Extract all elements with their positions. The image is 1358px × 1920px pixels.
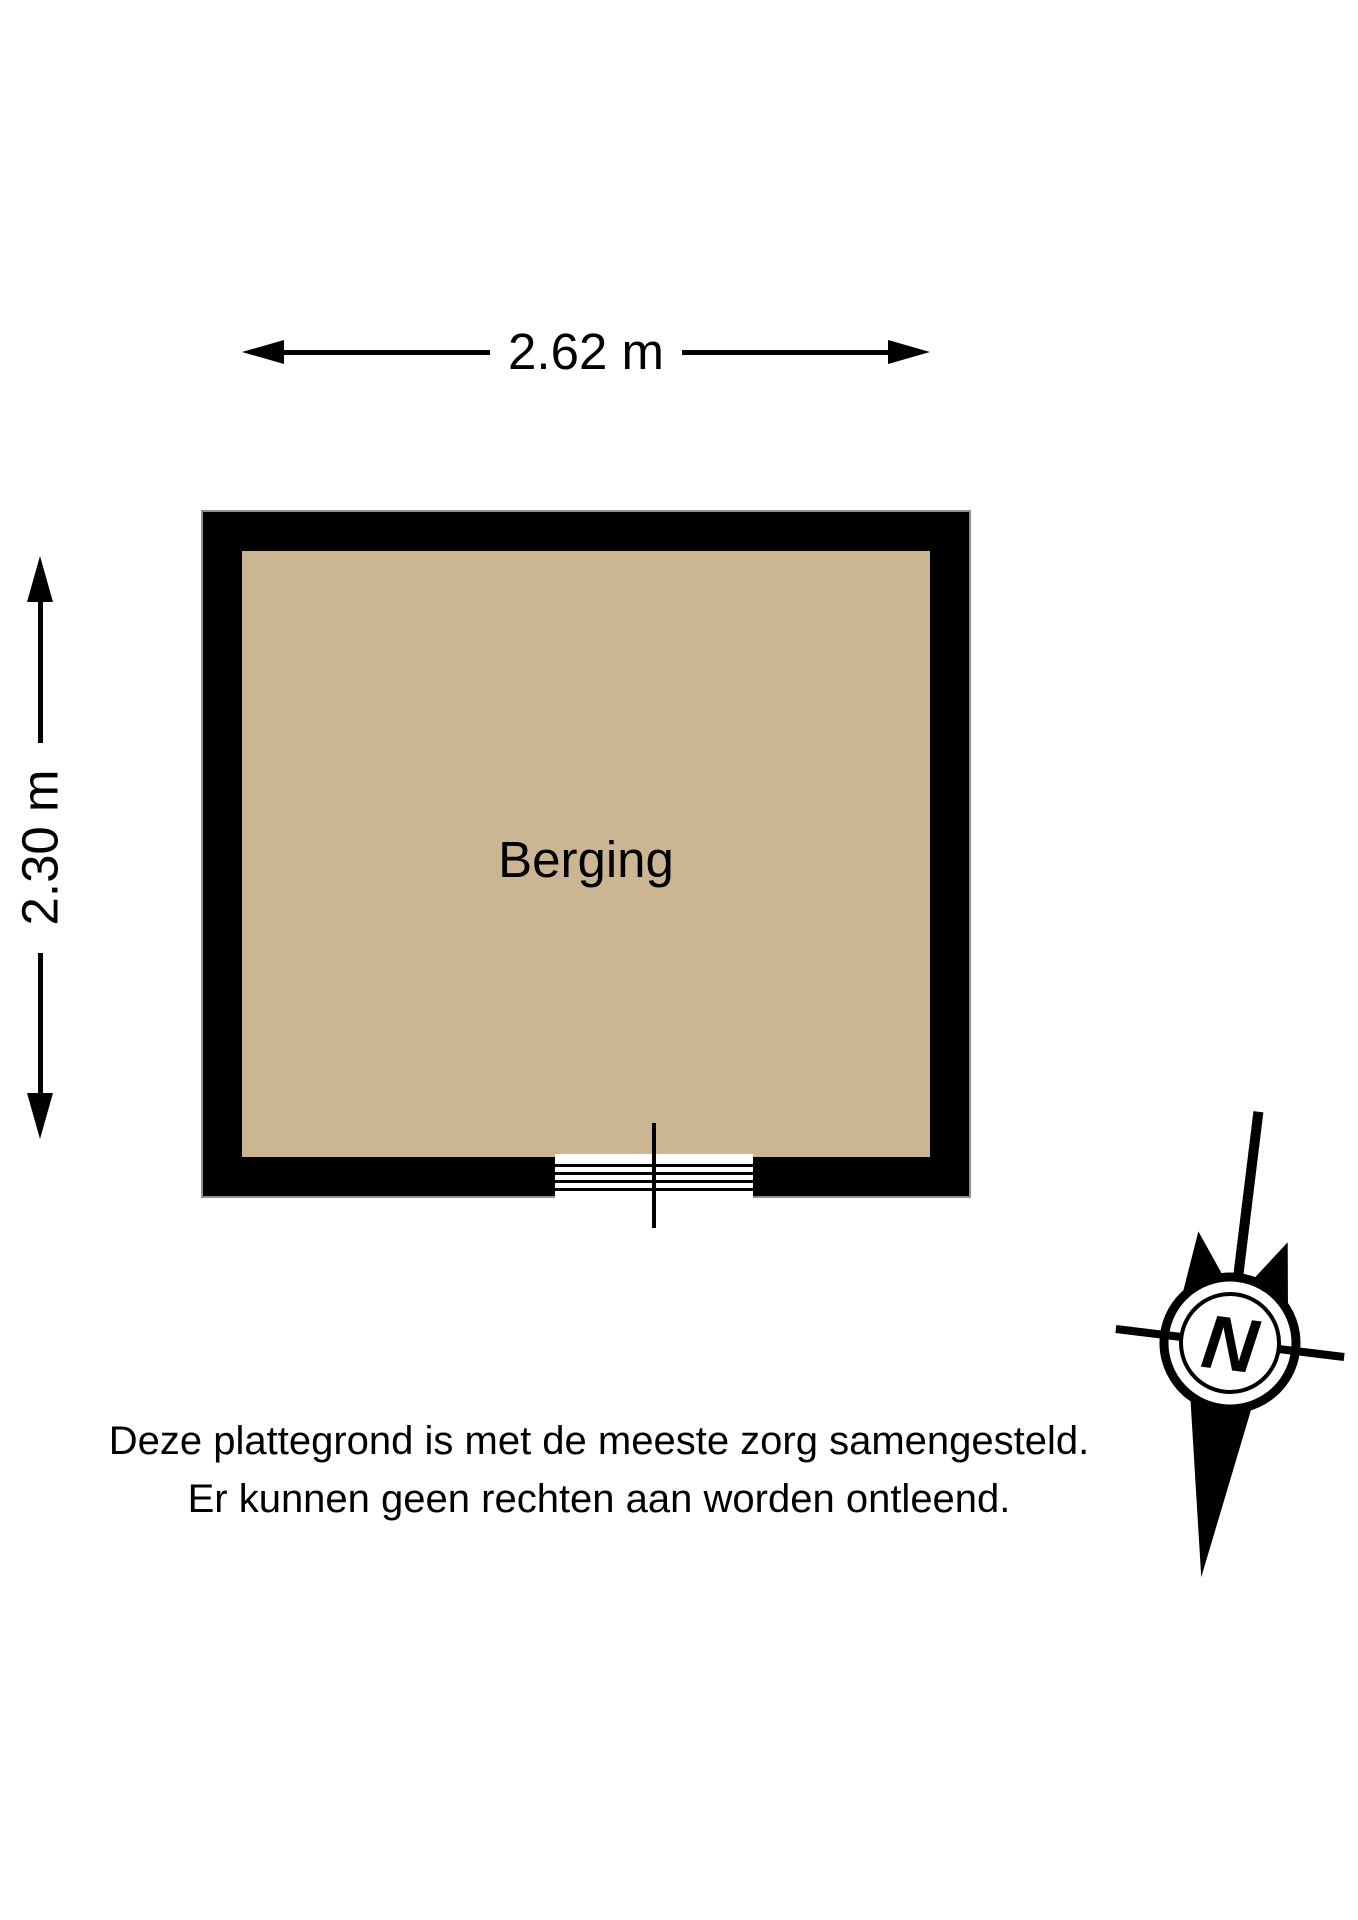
arrowhead-up-icon — [27, 556, 53, 602]
room-walls: Berging — [203, 512, 969, 1196]
width-dimension-label: 2.62 m — [490, 332, 682, 372]
door-center-line — [652, 1123, 656, 1228]
dimension-line — [284, 350, 490, 355]
disclaimer-line-2: Er kunnen geen rechten aan worden ontlee… — [0, 1470, 1198, 1528]
arrowhead-right-icon — [888, 340, 930, 364]
height-dimension-label-box: 2.30 m — [14, 743, 66, 953]
disclaimer-text: Deze plattegrond is met de meeste zorg s… — [0, 1412, 1198, 1528]
compass-needle-south — [1167, 1390, 1253, 1580]
arrowhead-down-icon — [27, 1093, 53, 1139]
dimension-line — [682, 350, 888, 355]
height-dimension-label: 2.30 m — [11, 770, 70, 926]
arrowhead-left-icon — [242, 340, 284, 364]
height-dimension: 2.30 m — [14, 556, 66, 1139]
room-label: Berging — [242, 830, 930, 890]
width-dimension: 2.62 m — [242, 332, 930, 372]
disclaimer-line-1: Deze plattegrond is met de meeste zorg s… — [0, 1412, 1198, 1470]
floorplan-page: 2.62 m 2.30 m Berging Deze plattegrond i… — [0, 0, 1358, 1920]
north-compass-icon: N — [1110, 1078, 1350, 1588]
dimension-line — [38, 602, 43, 743]
dimension-line — [38, 953, 43, 1094]
